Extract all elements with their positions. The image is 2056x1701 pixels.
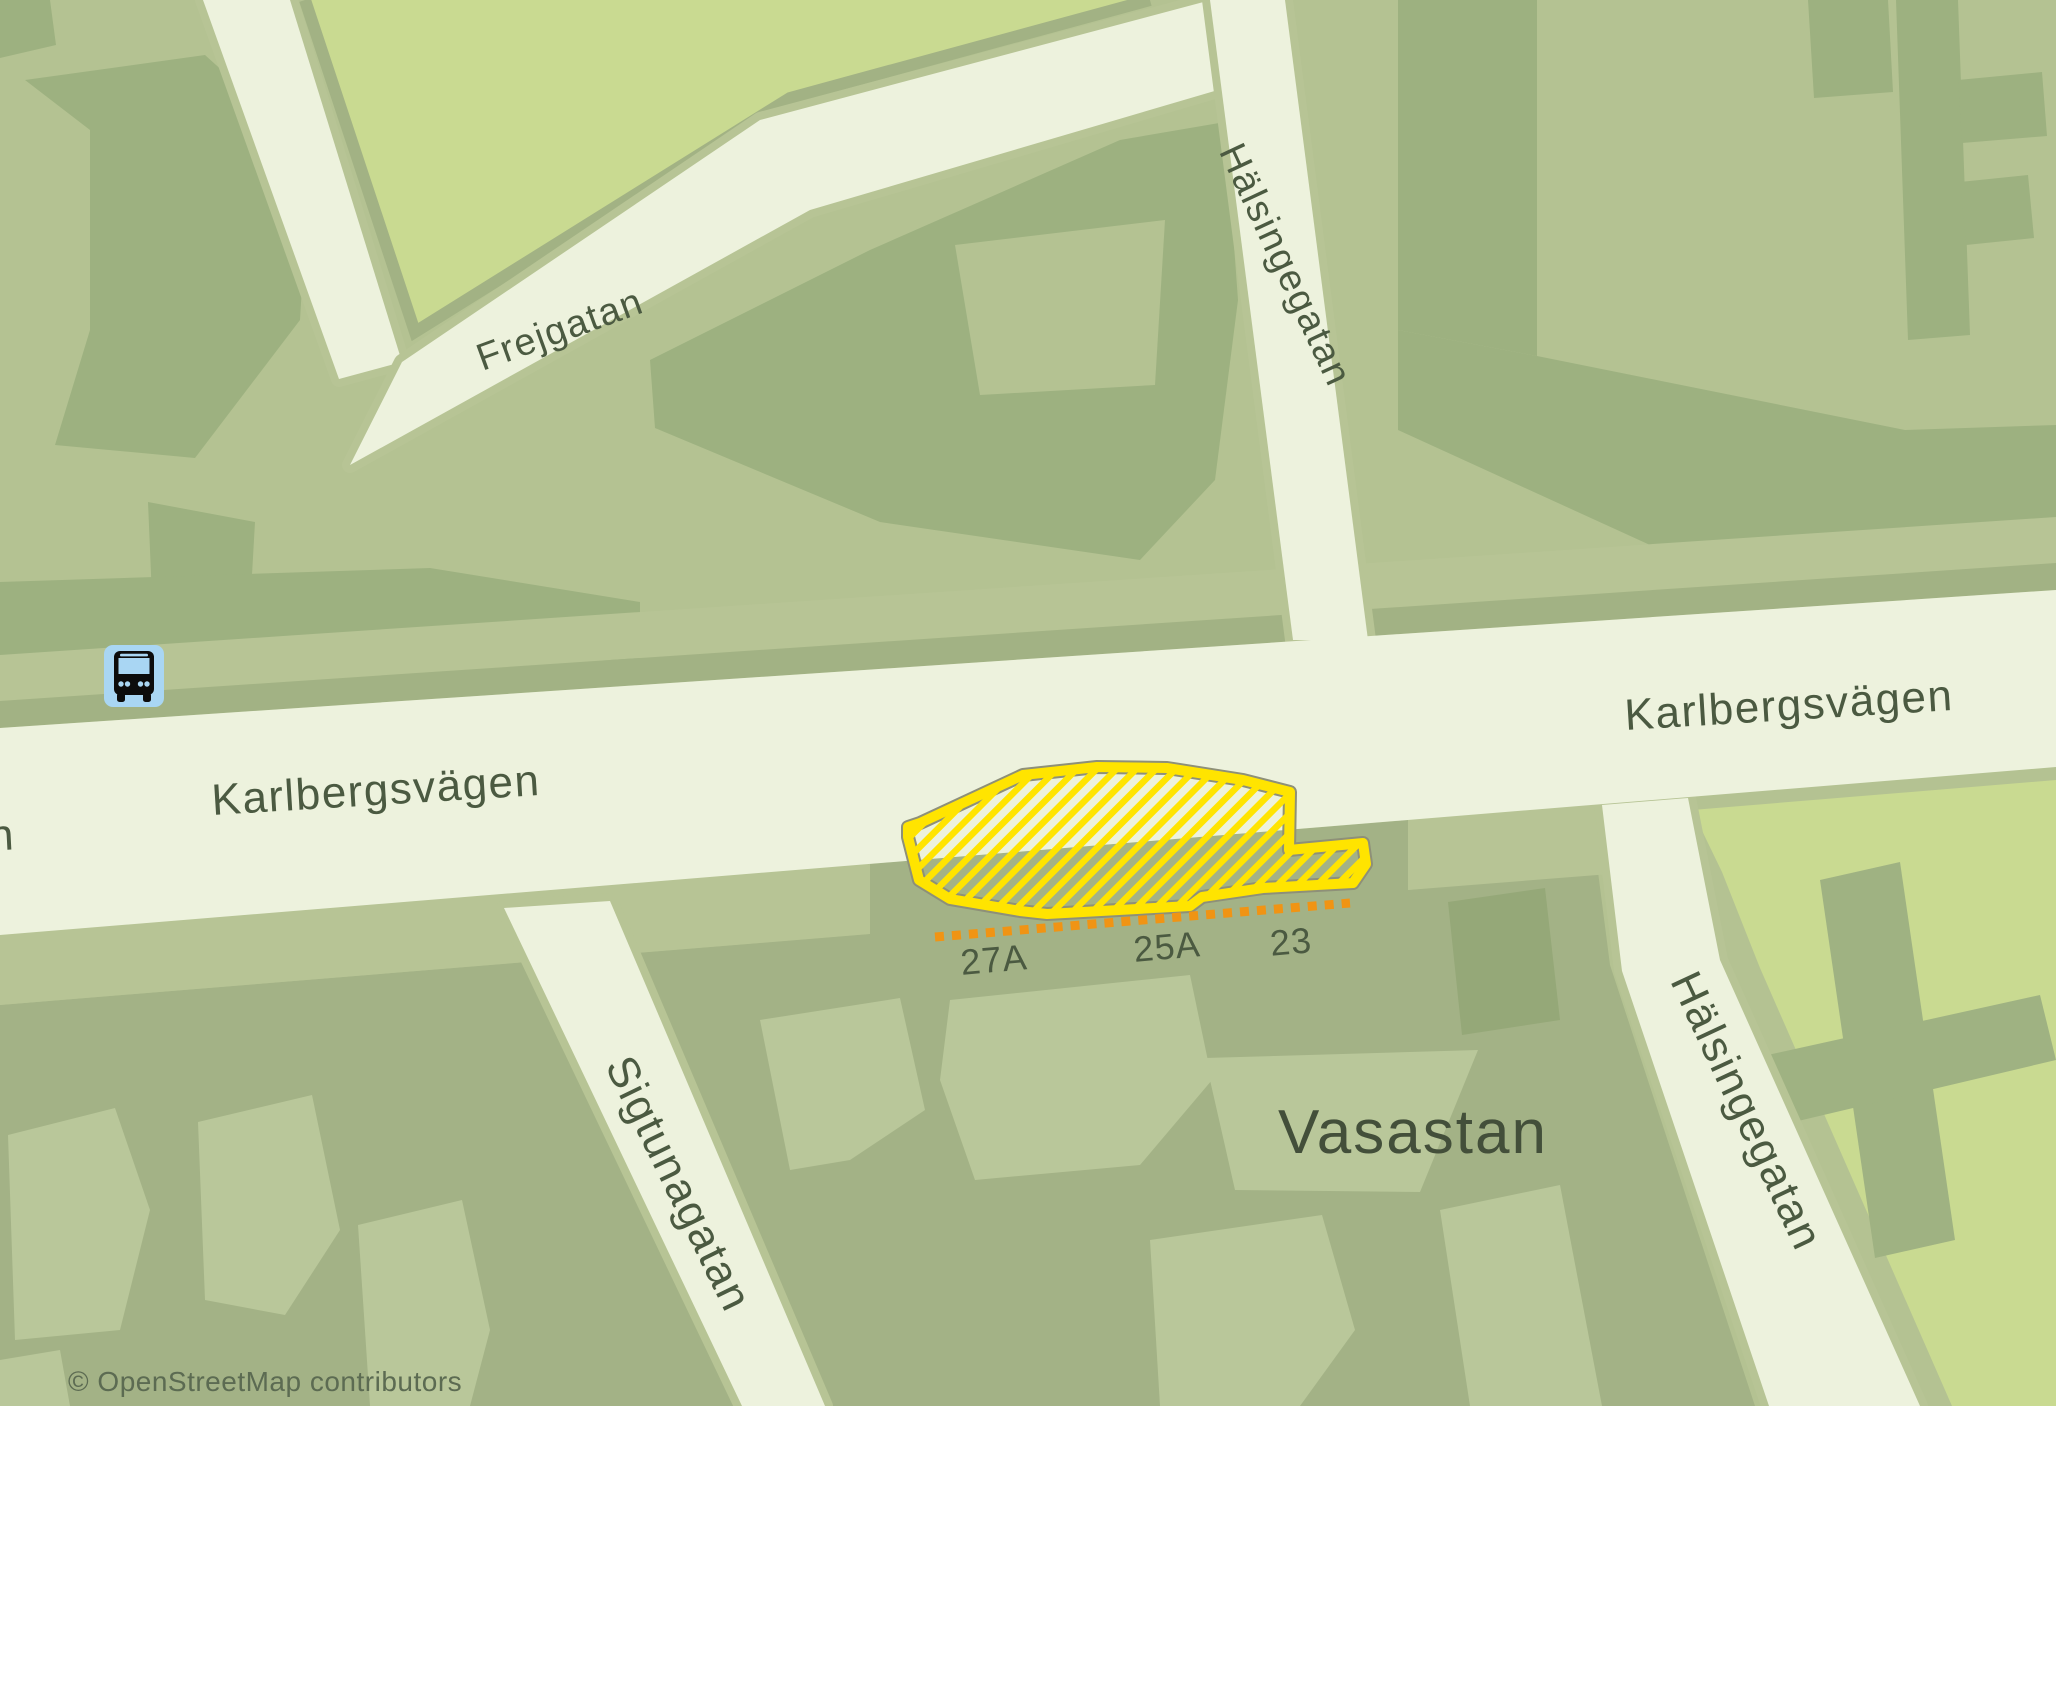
building [1448, 888, 1560, 1035]
courtyard [955, 220, 1165, 395]
building [0, 1350, 70, 1406]
building [1960, 175, 2034, 245]
house-number: 27A [959, 939, 1029, 981]
district-label: Vasastan [1278, 1102, 1548, 1164]
building [1958, 72, 2047, 143]
osm-attribution: © OpenStreetMap contributors [68, 1366, 462, 1398]
legend-panel: Arbetsområde ovan jord Ny placering för … [0, 1406, 2056, 1701]
map-canvas: Frejgatan Hälsingegatan Karlbergsvägen K… [0, 0, 2056, 1406]
house-number: 23 [1268, 922, 1313, 962]
building [1896, 0, 1970, 340]
bus-stop-map-icon [104, 645, 164, 707]
screenshot: Frejgatan Hälsingegatan Karlbergsvägen K… [0, 0, 2056, 1701]
building [1398, 0, 1537, 356]
street-label-fragment: n [0, 813, 16, 858]
building [1808, 0, 1893, 98]
house-number: 25A [1132, 926, 1202, 968]
